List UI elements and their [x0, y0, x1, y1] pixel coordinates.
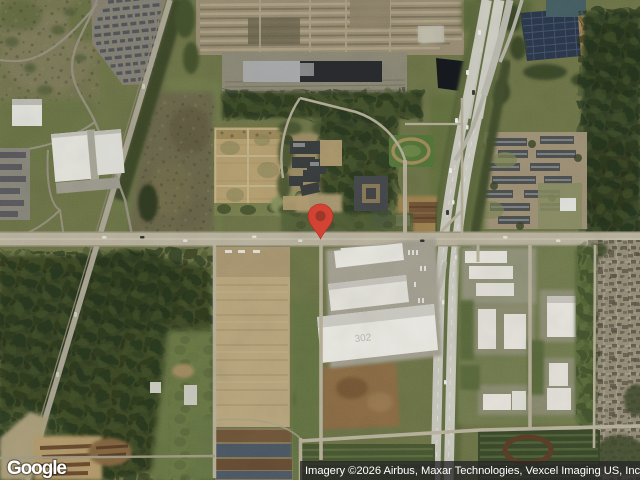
svg-text:Imagery ©2026 Airbus, Maxar Te: Imagery ©2026 Airbus, Maxar Technologies…	[305, 465, 640, 477]
svg-text:Google: Google	[7, 458, 66, 479]
